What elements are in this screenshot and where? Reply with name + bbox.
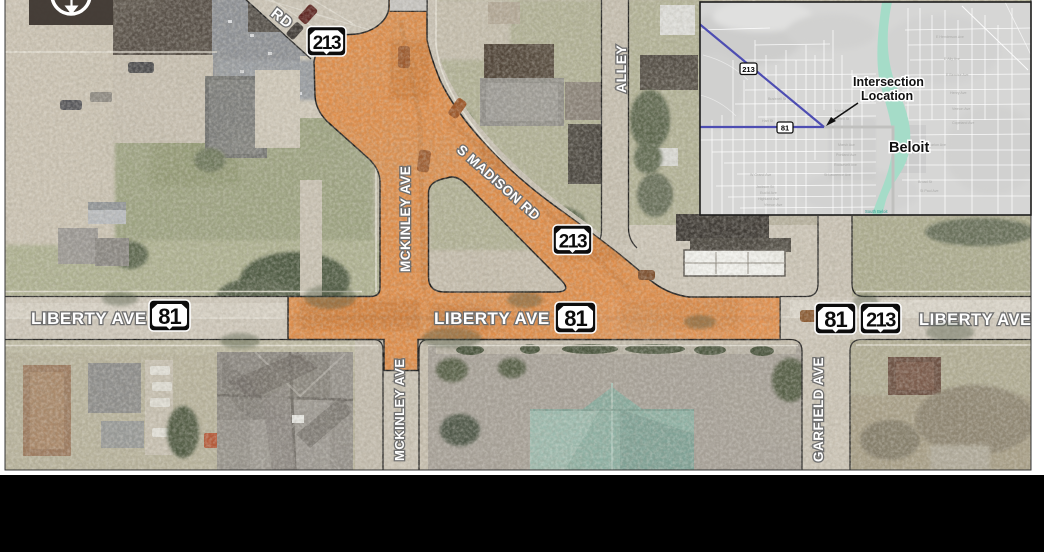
- svg-text:LIBERTY AVE: LIBERTY AVE: [434, 309, 550, 328]
- svg-text:Bushnell St: Bushnell St: [768, 97, 786, 101]
- svg-text:St Paul Ave: St Paul Ave: [920, 189, 939, 193]
- svg-text:Beloit: Beloit: [889, 140, 929, 156]
- svg-text:ALLEY: ALLEY: [613, 44, 629, 93]
- svg-text:MCKINLEY AVE: MCKINLEY AVE: [392, 358, 407, 461]
- svg-text:Vernon Ave: Vernon Ave: [764, 203, 782, 207]
- svg-text:81: 81: [781, 124, 789, 133]
- svg-text:Roosevelt Ave: Roosevelt Ave: [834, 163, 857, 167]
- svg-text:Portland Ave: Portland Ave: [836, 153, 856, 157]
- svg-text:Intersection: Intersection: [853, 75, 924, 89]
- svg-text:Highland Ave: Highland Ave: [758, 197, 779, 201]
- svg-text:Hart St: Hart St: [762, 119, 773, 123]
- svg-text:MCKINLEY AVE: MCKINLEY AVE: [398, 166, 413, 272]
- svg-text:Marion Ave: Marion Ave: [928, 143, 946, 147]
- svg-text:E Bernice Ave: E Bernice Ave: [946, 73, 969, 77]
- svg-text:GARFIELD AVE: GARFIELD AVE: [811, 357, 826, 462]
- svg-text:St Lawrence Ave: St Lawrence Ave: [824, 173, 851, 177]
- svg-text:South Beloit: South Beloit: [865, 209, 888, 214]
- svg-text:Jackson St: Jackson St: [756, 185, 774, 189]
- svg-text:E Ally Ave: E Ally Ave: [944, 57, 960, 61]
- svg-text:E Henderson Ave: E Henderson Ave: [936, 35, 964, 39]
- svg-text:Marsh Ave: Marsh Ave: [838, 143, 855, 147]
- svg-text:Euclid Ave: Euclid Ave: [760, 191, 777, 195]
- svg-text:W Grand Ave: W Grand Ave: [750, 173, 771, 177]
- svg-text:Broad St: Broad St: [918, 180, 932, 184]
- svg-text:213: 213: [742, 65, 755, 74]
- svg-text:Location: Location: [861, 89, 913, 103]
- svg-text:Henry Ave: Henry Ave: [950, 91, 967, 95]
- svg-text:LIBERTY AVE: LIBERTY AVE: [31, 309, 147, 328]
- svg-text:Vernon Ave: Vernon Ave: [952, 107, 970, 111]
- svg-text:Copeland Ave: Copeland Ave: [952, 121, 974, 125]
